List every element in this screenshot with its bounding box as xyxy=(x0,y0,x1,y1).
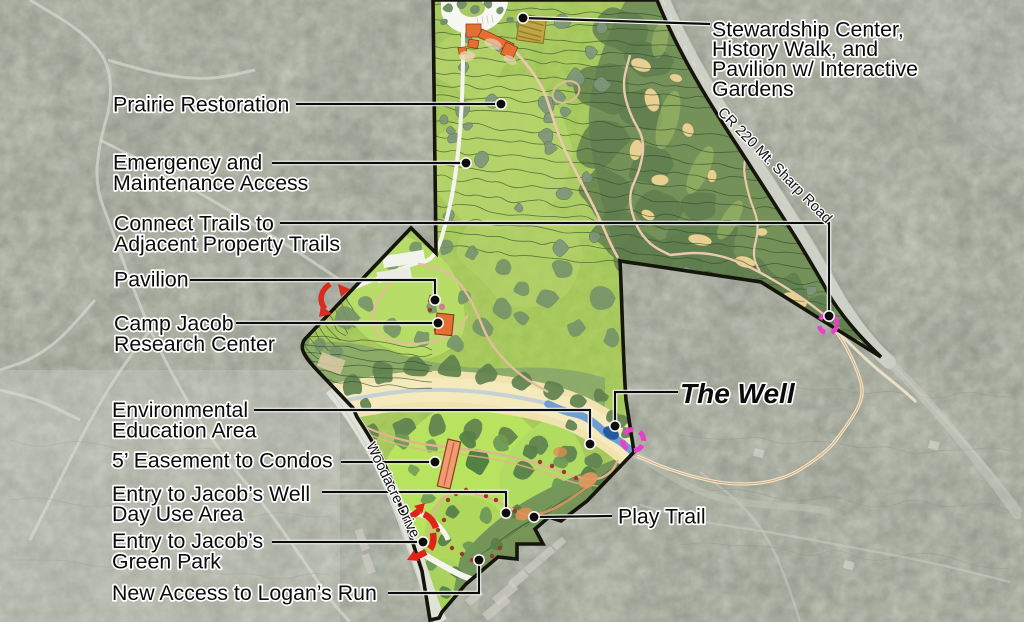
svg-text:Adjacent Property Trails: Adjacent Property Trails xyxy=(114,232,340,256)
svg-text:Prairie Restoration: Prairie Restoration xyxy=(113,93,289,117)
svg-text:Pavilion: Pavilion xyxy=(114,268,189,292)
svg-text:5’ Easement to Condos: 5’ Easement to Condos xyxy=(112,449,333,473)
svg-text:Play Trail: Play Trail xyxy=(618,504,706,528)
svg-text:Maintenance Access: Maintenance Access xyxy=(113,171,308,195)
svg-text:Green Park: Green Park xyxy=(112,550,221,574)
svg-text:The Well: The Well xyxy=(680,378,796,409)
svg-text:New Access to Logan’s Run: New Access to Logan’s Run xyxy=(112,581,377,605)
svg-text:Research Center: Research Center xyxy=(114,332,275,356)
svg-text:Gardens: Gardens xyxy=(712,77,794,101)
svg-text:Day Use Area: Day Use Area xyxy=(112,502,244,526)
svg-text:Education Area: Education Area xyxy=(112,418,257,442)
